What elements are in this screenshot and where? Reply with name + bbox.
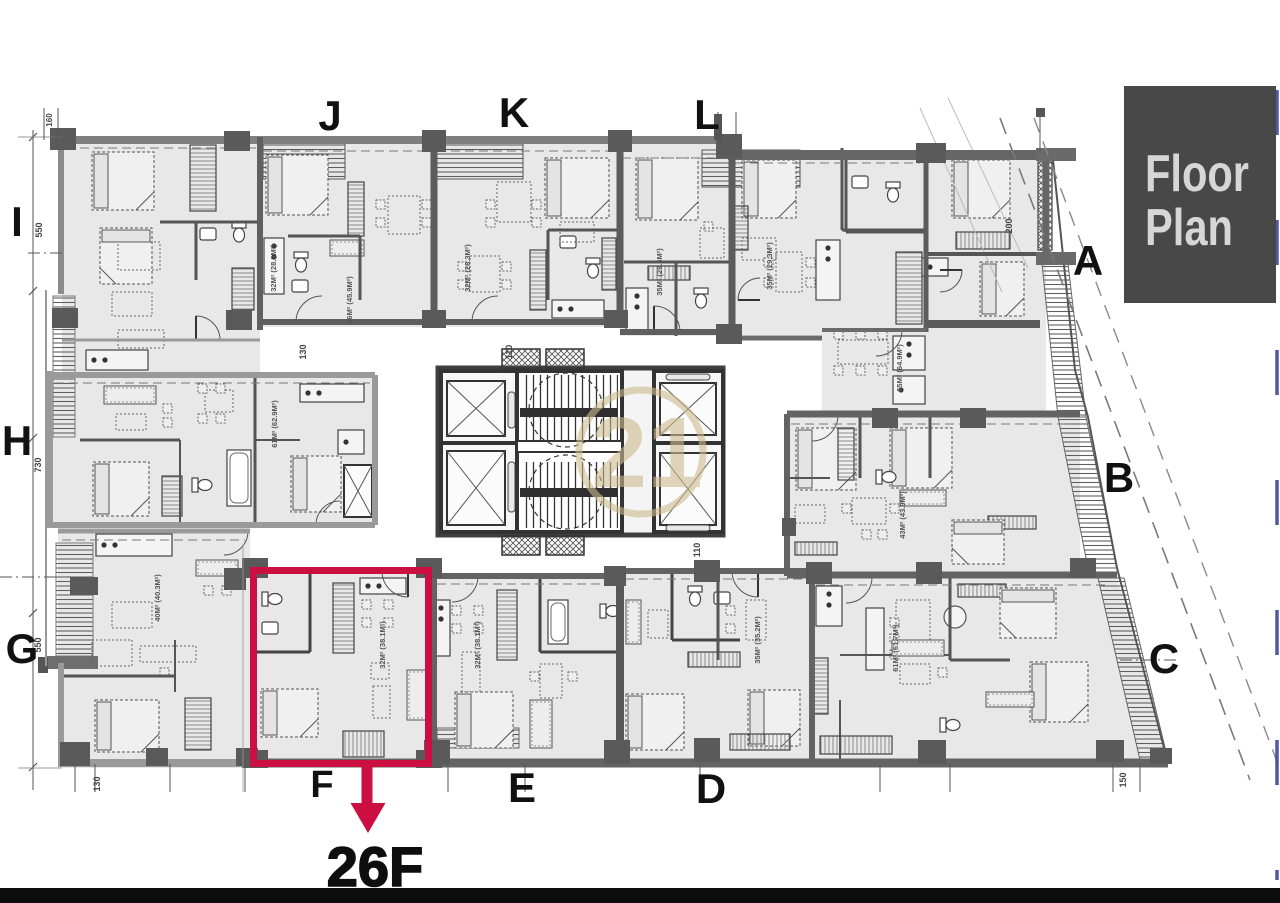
svg-text:550: 550 <box>34 222 44 237</box>
svg-text:40M² (40.3M²): 40M² (40.3M²) <box>153 574 162 622</box>
svg-text:G: G <box>6 625 39 672</box>
svg-text:B: B <box>1104 454 1134 501</box>
svg-text:150: 150 <box>1118 772 1128 787</box>
svg-text:D: D <box>696 765 726 812</box>
svg-text:61M² (62.9M²): 61M² (62.9M²) <box>270 400 279 448</box>
svg-text:160: 160 <box>45 113 54 127</box>
svg-text:46M² (45.9M²): 46M² (45.9M²) <box>345 276 354 324</box>
svg-text:Floor: Floor <box>1145 145 1249 203</box>
svg-text:61M² (61.7M²): 61M² (61.7M²) <box>891 624 900 672</box>
svg-text:32M² (38.1M²): 32M² (38.1M²) <box>378 621 387 669</box>
svg-text:32M² (38.1M²): 32M² (38.1M²) <box>473 621 482 669</box>
svg-text:35M² (35.2M²): 35M² (35.2M²) <box>753 616 762 664</box>
svg-text:32M² (28.3M²): 32M² (28.3M²) <box>463 244 472 292</box>
svg-text:130: 130 <box>92 776 102 791</box>
svg-text:130: 130 <box>298 344 308 359</box>
svg-text:730: 730 <box>33 457 43 472</box>
svg-text:J: J <box>318 92 341 139</box>
svg-text:C: C <box>1149 635 1179 682</box>
svg-text:35M² (29.3M²): 35M² (29.3M²) <box>765 242 774 290</box>
svg-text:65M² (64.9M²): 65M² (64.9M²) <box>895 344 904 392</box>
svg-text:110: 110 <box>692 543 702 558</box>
svg-text:43M² (43.9M²): 43M² (43.9M²) <box>898 491 907 539</box>
svg-text:200: 200 <box>1004 218 1014 233</box>
svg-text:E: E <box>508 764 536 811</box>
svg-text:21: 21 <box>591 397 702 509</box>
svg-text:32M² (28.3M²): 32M² (28.3M²) <box>269 244 278 292</box>
svg-text:L: L <box>694 91 720 138</box>
svg-text:Plan: Plan <box>1145 199 1233 257</box>
svg-text:K: K <box>499 89 529 136</box>
svg-text:I: I <box>11 198 23 245</box>
svg-text:F: F <box>310 764 333 806</box>
svg-text:35M² (29.3M²): 35M² (29.3M²) <box>655 248 664 296</box>
svg-text:A: A <box>1073 237 1103 284</box>
svg-text:H: H <box>2 417 32 464</box>
svg-text:110: 110 <box>504 345 514 360</box>
